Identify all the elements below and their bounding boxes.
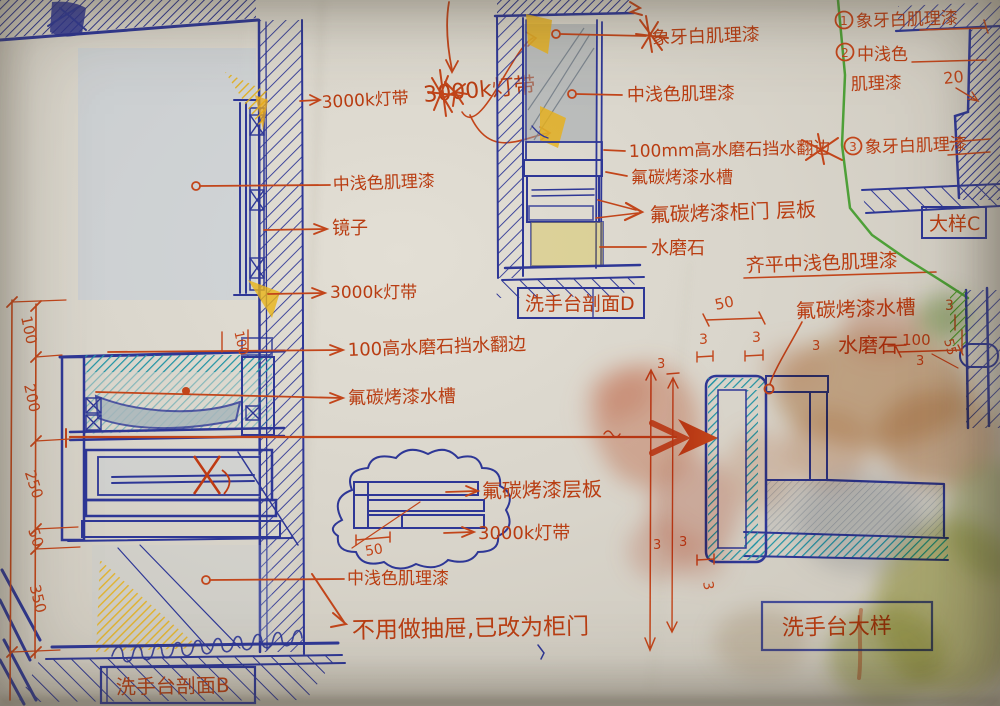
section-d-title: 洗手台剖面D xyxy=(525,293,635,315)
detail-c-drawing: 大样C xyxy=(862,2,1000,238)
sketch-photo: 洗手台剖面B 100 200 250 50 350 100 3000k灯带 30… xyxy=(0,0,1000,706)
sketch-canvas: 洗手台剖面B 100 200 250 50 350 100 3000k灯带 30… xyxy=(0,0,1000,706)
label-sink-b: 氟碳烤漆水槽 xyxy=(348,386,456,409)
sink-d xyxy=(524,160,602,176)
shelf-band-2 xyxy=(82,521,280,537)
dim-c20: 20 xyxy=(942,67,964,88)
counter-assembly xyxy=(60,338,284,540)
cut-scribble xyxy=(630,2,642,15)
section-b-title: 洗手台剖面B xyxy=(116,673,230,699)
label-door-d: 氟碳烤漆柜门 层板 xyxy=(649,197,816,227)
detail-c-title-box: 大样C xyxy=(922,207,986,238)
section-d-title-box: 洗手台剖面D xyxy=(518,288,644,318)
label-cabinet-paint: 中浅色肌理漆 xyxy=(347,569,449,589)
label-shelf-light: 3000k灯带 xyxy=(478,523,570,544)
label-wall-paint: 中浅色肌理漆 xyxy=(332,171,435,195)
label-splash-d: 100mm高水磨石挡水翻边 xyxy=(629,138,831,162)
label-shelf-board: 氟碳烤漆层板 xyxy=(482,477,602,503)
label-light-top: 3000k灯带 xyxy=(321,88,409,113)
pen-blot xyxy=(50,2,86,37)
label-sink-d: 氟碳烤漆水槽 xyxy=(631,168,733,188)
dim-seg3: 250 xyxy=(21,468,47,501)
shelf-board-top xyxy=(354,482,478,495)
label-flush: 齐平中浅色肌理漆 xyxy=(745,250,898,277)
shelf-callout: 50 氟碳烤漆层板 3000k灯带 xyxy=(333,450,602,569)
label-terrazzo-d: 水磨石 xyxy=(651,238,705,259)
wall-hatch-d xyxy=(497,16,523,278)
label-mid-tone-d: 中浅色肌理漆 xyxy=(627,83,735,106)
marker-2: 2 xyxy=(841,46,849,60)
label-note: 不用做抽屉,已改为柜门 xyxy=(352,614,590,644)
label-c1: 象牙白肌理漆 xyxy=(855,8,958,32)
cabinet-d xyxy=(527,176,599,222)
marker-3: 3 xyxy=(849,140,857,154)
shelf-band-1 xyxy=(86,500,276,516)
dim-seg5: 350 xyxy=(26,583,50,615)
dim-m-top: 50 xyxy=(713,292,735,314)
front-apron xyxy=(62,357,84,540)
ceiling-hatch xyxy=(0,0,256,38)
dim-m-3r: 3 xyxy=(752,330,761,346)
backsplash-d xyxy=(526,142,602,160)
dim-seg2: 200 xyxy=(20,382,44,414)
detail-c-title: 大样C xyxy=(929,213,980,235)
dim-seg1: 100 xyxy=(17,314,41,346)
label-light-mid: 3000k灯带 xyxy=(330,283,417,303)
label-splash: 100高水磨石挡水翻边 xyxy=(347,334,526,361)
dim-m-3l: 3 xyxy=(699,332,708,348)
section-d-drawing: 洗手台剖面D xyxy=(495,0,644,318)
wall-wash xyxy=(78,48,256,300)
label-c2b: 肌理漆 xyxy=(850,73,902,95)
marker-1: 1 xyxy=(840,14,848,28)
label-ivory-d: 象牙白肌理漆 xyxy=(651,24,760,49)
shelf-end-cap xyxy=(354,482,368,528)
label-c2: 中浅色 xyxy=(857,45,908,65)
shelf-board-mid xyxy=(368,500,484,511)
shelf-board-bottom xyxy=(402,515,484,528)
dim-shelf-50: 50 xyxy=(364,541,384,560)
label-mirror: 镜子 xyxy=(332,218,368,239)
